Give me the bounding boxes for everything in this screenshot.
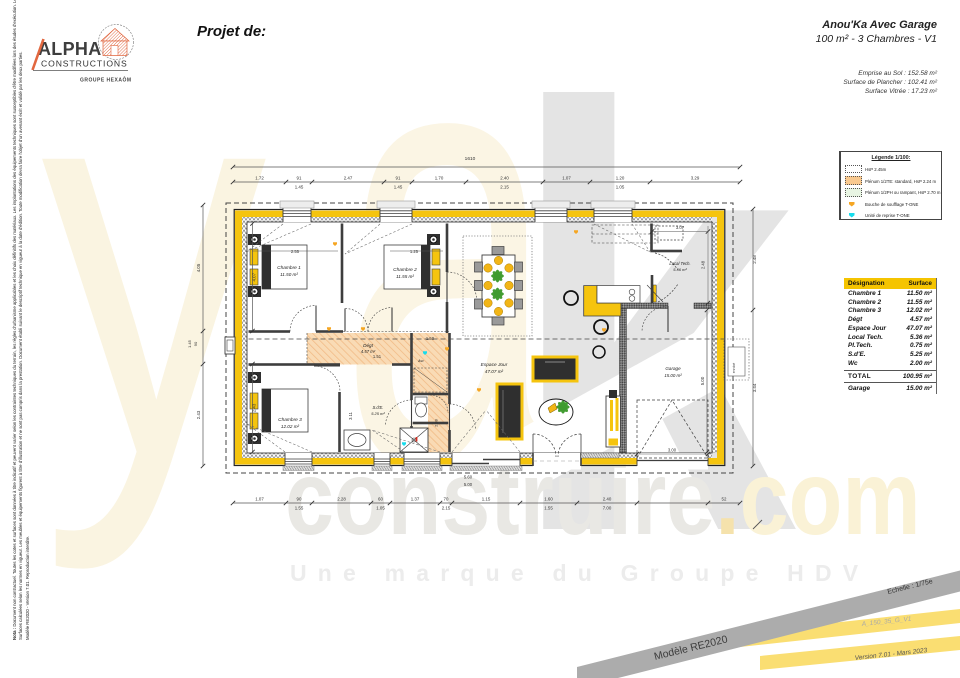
svg-text:2.47: 2.47 [344,176,353,181]
svg-text:1.45: 1.45 [187,339,192,348]
svg-text:1.07: 1.07 [255,497,264,502]
svg-text:1.70: 1.70 [435,176,444,181]
svg-text:12.02 m²: 12.02 m² [281,424,300,429]
svg-text:60: 60 [378,497,383,502]
svg-text:1.55: 1.55 [544,506,553,511]
svg-text:2.48: 2.48 [752,255,757,264]
svg-text:7.00: 7.00 [603,506,612,511]
svg-text:2.43: 2.43 [252,403,257,412]
svg-text:1.51: 1.51 [373,354,382,359]
svg-text:3.44: 3.44 [752,383,757,392]
svg-text:2.28: 2.28 [337,497,346,502]
svg-text:1.37: 1.37 [411,497,420,502]
svg-text:Garage: Garage [665,366,681,371]
svg-text:Chambre 2: Chambre 2 [393,267,417,273]
svg-text:1.45: 1.45 [394,185,403,190]
svg-text:11.55 m²: 11.55 m² [396,274,414,279]
svg-text:Chambre 1: Chambre 1 [277,265,301,271]
svg-text:Espace Jour: Espace Jour [481,362,508,368]
svg-text:91: 91 [396,176,401,181]
svg-text:2.15: 2.15 [442,506,451,511]
svg-text:2.48: 2.48 [701,260,706,269]
svg-text:52: 52 [722,497,727,502]
svg-text:1.15: 1.15 [482,497,491,502]
svg-text:Chambre 3: Chambre 3 [278,417,302,423]
svg-text:5.60: 5.60 [464,475,473,480]
svg-text:1.55: 1.55 [295,506,304,511]
svg-text:Local Tech.: Local Tech. [669,261,690,266]
svg-text:1.72: 1.72 [255,176,264,181]
svg-text:enrobé: enrobé [732,363,736,374]
svg-text:5.00: 5.00 [464,482,473,487]
svg-text:1.45: 1.45 [295,185,304,190]
svg-text:Dégt: Dégt [363,343,373,348]
svg-text:2.55: 2.55 [291,249,300,254]
svg-text:4.07: 4.07 [252,272,257,281]
svg-text:1610: 1610 [465,156,476,162]
svg-text:3.29: 3.29 [691,176,700,181]
svg-text:70: 70 [444,497,449,502]
svg-text:1.20: 1.20 [616,176,625,181]
svg-text:5.36 m²: 5.36 m² [673,267,687,272]
svg-text:5.00: 5.00 [700,376,705,385]
svg-text:2.40: 2.40 [500,176,509,181]
svg-text:47.07 m²: 47.07 m² [485,369,504,374]
svg-text:90: 90 [193,341,198,346]
svg-text:S.d'E.: S.d'E. [372,405,383,410]
svg-text:1.50: 1.50 [426,336,435,341]
svg-text:90: 90 [297,497,302,502]
svg-text:1.07: 1.07 [562,176,571,181]
svg-text:1.25: 1.25 [410,249,419,254]
svg-text:4.05: 4.05 [196,263,201,272]
svg-text:1.05: 1.05 [616,185,625,190]
svg-text:3.00: 3.00 [668,448,677,453]
svg-text:11.50 m²: 11.50 m² [280,272,298,277]
svg-text:5.25 m²: 5.25 m² [371,411,385,416]
svg-text:3.07: 3.07 [676,225,685,230]
svg-text:3.11: 3.11 [348,411,353,420]
svg-text:2.43: 2.43 [196,410,201,419]
svg-text:2.38: 2.38 [434,418,439,427]
svg-text:2.15: 2.15 [500,185,509,190]
svg-text:91: 91 [297,176,302,181]
svg-text:15.00 m²: 15.00 m² [664,373,682,378]
svg-text:2.40: 2.40 [603,497,612,502]
svg-text:1.60: 1.60 [544,497,553,502]
svg-text:1.05: 1.05 [376,506,385,511]
svg-text:Asc: Asc [417,359,424,363]
